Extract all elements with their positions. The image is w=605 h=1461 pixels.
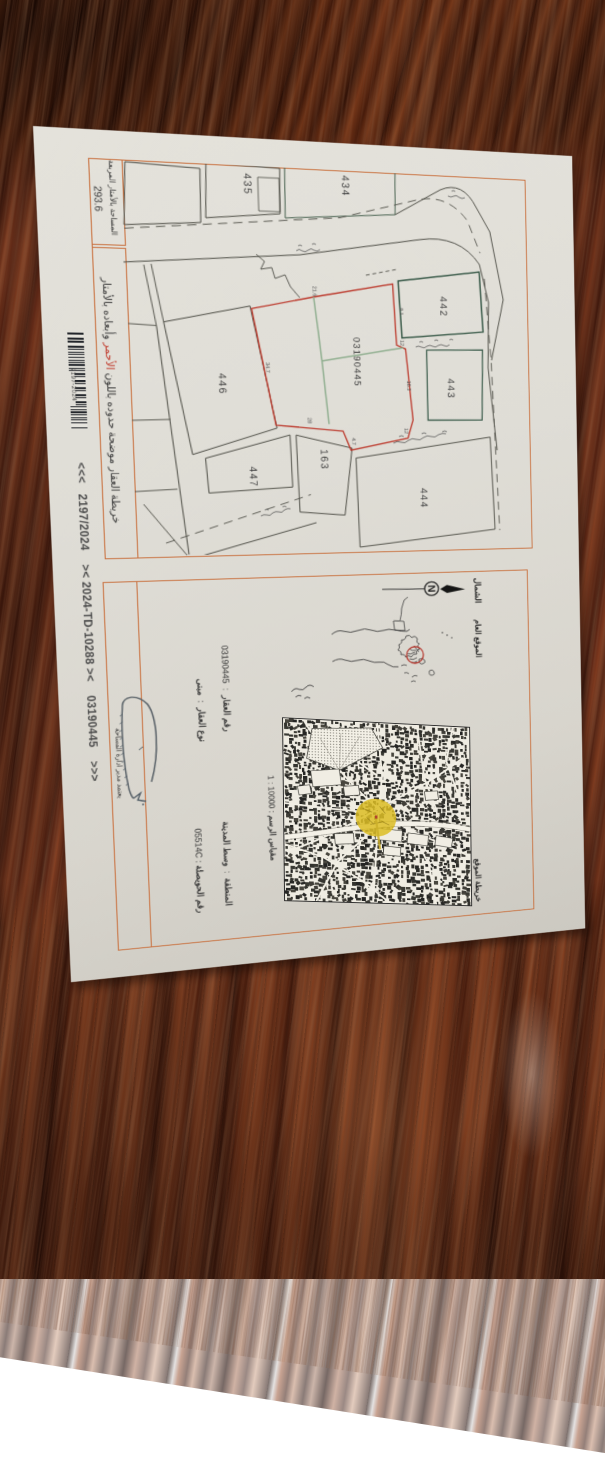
svg-text:03190445: 03190445 [351,337,362,387]
svg-text:21.6: 21.6 [311,286,317,297]
svg-text:435: 435 [241,173,253,195]
svg-text:12: 12 [403,428,408,434]
svg-text:4.7: 4.7 [350,438,356,446]
svg-text:444: 444 [418,488,429,509]
svg-text:N: N [425,585,437,593]
svg-text:34.7: 34.7 [264,362,270,373]
svg-text:442: 442 [437,296,448,317]
svg-text:28: 28 [306,418,312,424]
svg-text:12: 12 [399,340,404,346]
svg-text:434: 434 [339,175,350,197]
svg-text:447: 447 [247,466,259,487]
svg-text:8.1: 8.1 [398,308,403,316]
svg-text:446: 446 [216,373,228,395]
svg-text:16.3: 16.3 [405,381,411,392]
svg-text:163: 163 [318,449,329,470]
svg-text:443: 443 [445,378,456,399]
